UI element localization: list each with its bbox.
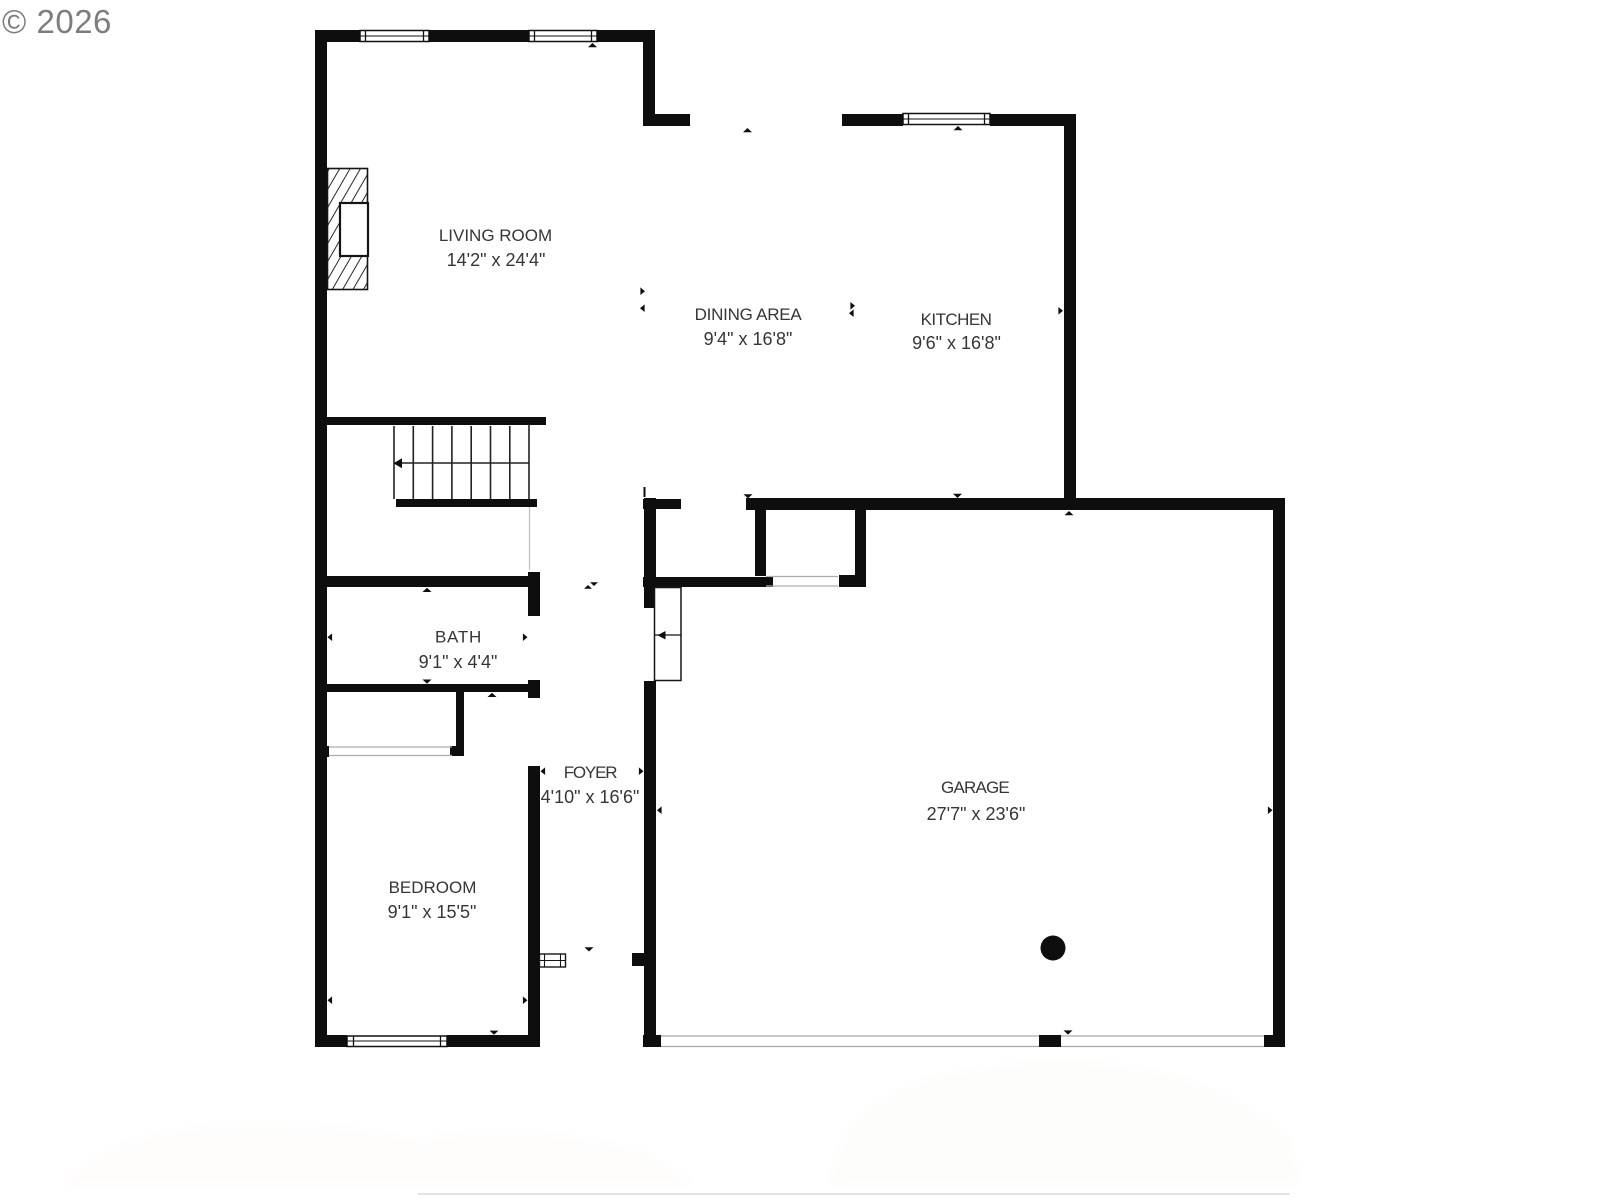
svg-text:FOYER: FOYER bbox=[564, 763, 617, 782]
svg-text:27'7" x 23'6": 27'7" x 23'6" bbox=[927, 804, 1026, 824]
svg-text:BATH: BATH bbox=[435, 628, 482, 647]
svg-text:GARAGE: GARAGE bbox=[941, 778, 1009, 797]
svg-text:9'4" x 16'8": 9'4" x 16'8" bbox=[704, 329, 793, 349]
svg-text:BEDROOM: BEDROOM bbox=[389, 878, 477, 897]
svg-text:© 2026: © 2026 bbox=[2, 3, 112, 40]
svg-text:9'1" x 15'5": 9'1" x 15'5" bbox=[388, 902, 477, 922]
svg-text:14'2" x 24'4": 14'2" x 24'4" bbox=[447, 250, 546, 270]
svg-text:9'6" x 16'8": 9'6" x 16'8" bbox=[912, 333, 1001, 353]
svg-text:KITCHEN: KITCHEN bbox=[921, 310, 992, 329]
svg-text:LIVING ROOM: LIVING ROOM bbox=[439, 226, 552, 245]
svg-text:DINING AREA: DINING AREA bbox=[695, 305, 803, 324]
svg-text:9'1" x 4'4": 9'1" x 4'4" bbox=[419, 652, 498, 672]
svg-text:4'10" x 16'6": 4'10" x 16'6" bbox=[541, 787, 640, 807]
